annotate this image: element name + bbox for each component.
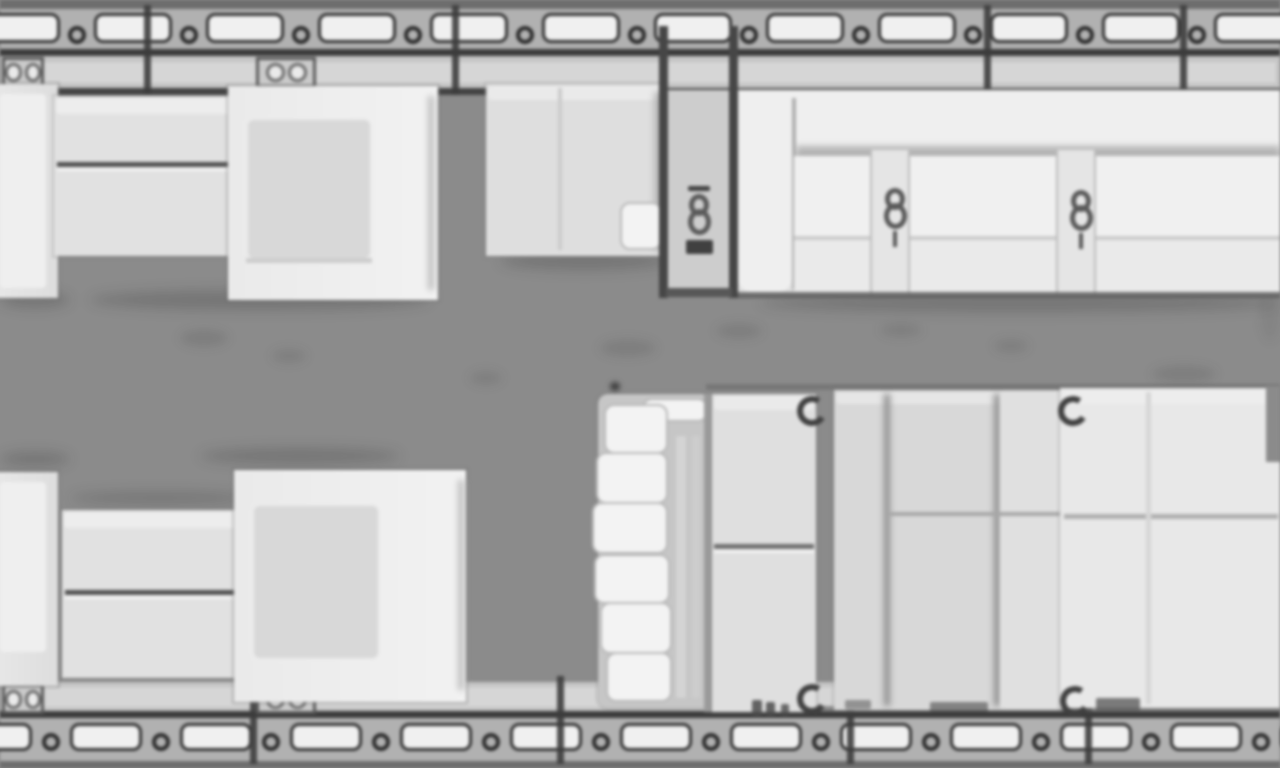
fuselage-frame-line xyxy=(452,5,459,95)
window-bracket xyxy=(922,733,940,751)
exit-seatbelt-icon xyxy=(684,186,714,286)
floor-fitting-mark xyxy=(766,702,775,716)
sidewall-fitting-bottom-left xyxy=(2,684,44,714)
cabin-window xyxy=(510,723,582,751)
cabin-window xyxy=(0,723,32,751)
seatbelt-part xyxy=(1079,233,1083,249)
seatbelt-part xyxy=(1070,205,1093,231)
bed-mattress-highlight xyxy=(1062,390,1278,404)
fuselage-frame-line xyxy=(1180,5,1187,95)
fuselage-top-sill-inner xyxy=(4,62,1276,83)
cabin-window xyxy=(950,723,1022,751)
window-bracket xyxy=(404,26,422,44)
shadow-above-aft-seat xyxy=(200,448,400,464)
cabin-window xyxy=(0,13,60,43)
seatbelt-part xyxy=(884,203,907,229)
window-bracket xyxy=(1188,26,1206,44)
stair-step-5 xyxy=(600,602,672,654)
cabin-window xyxy=(94,13,172,43)
floor-smudge xyxy=(272,350,306,362)
galley-credenza-seam xyxy=(558,88,562,250)
divan-front-rail xyxy=(794,240,1280,292)
stair-step-2 xyxy=(596,452,668,504)
forward-left-seat-cushion xyxy=(0,94,46,288)
floor-fitting-mark xyxy=(1096,698,1140,710)
floor-smudge xyxy=(470,372,502,384)
window-bracket xyxy=(852,26,870,44)
stair-unit-stripe xyxy=(676,436,686,698)
cabin-window xyxy=(990,13,1068,43)
bed-mattress-crease xyxy=(1146,392,1151,704)
seatbelt-part xyxy=(686,240,713,254)
window-bracket xyxy=(482,733,500,751)
forward-club-seat-frontline xyxy=(246,258,372,263)
cabin-window xyxy=(1060,723,1132,751)
cabin-window xyxy=(206,13,284,43)
divan-armrest-left xyxy=(738,94,792,292)
aft-cabinet-panel xyxy=(712,394,816,712)
galley-credenza-highlight xyxy=(488,86,662,100)
fitting-circle xyxy=(5,63,22,82)
divan-seatbelt-icon-1 xyxy=(878,188,912,288)
shadow-above-aft-left-seat xyxy=(0,452,70,466)
forward-club-seat-cushion xyxy=(246,118,372,260)
window-bracket xyxy=(152,733,170,751)
floor-fitting-mark xyxy=(930,702,988,712)
aft-club-seat-backline xyxy=(458,480,464,690)
cabin-window xyxy=(730,723,802,751)
floor-smudge xyxy=(1152,366,1216,382)
window-bracket xyxy=(628,26,646,44)
shadow-above-aft-table xyxy=(70,492,250,504)
forward-table-highlight xyxy=(56,98,244,114)
window-bracket xyxy=(372,733,390,751)
floor-smudge xyxy=(716,324,762,338)
cabin-window xyxy=(180,723,252,751)
fitting-circle xyxy=(5,690,22,709)
divan-bottom-line xyxy=(736,292,1280,298)
window-bracket xyxy=(292,26,310,44)
forward-club-seat-backline xyxy=(428,96,434,290)
cabin-window xyxy=(878,13,956,43)
floor-fitting-mark xyxy=(752,700,762,716)
cabin-floor-plan-screenshot xyxy=(0,0,1280,768)
cabin-window xyxy=(1170,723,1242,751)
fitting-circle xyxy=(266,63,285,82)
cabin-window xyxy=(1214,13,1280,43)
floor-smudge xyxy=(880,324,922,336)
stair-step-6 xyxy=(606,652,672,702)
window-bracket xyxy=(592,733,610,751)
floor-speck xyxy=(610,382,620,391)
cabin-window xyxy=(400,723,472,751)
window-bracket xyxy=(1142,733,1160,751)
bed-corner-notch xyxy=(1266,386,1280,462)
bed-mattress xyxy=(1060,388,1280,708)
fuselage-frame-line xyxy=(144,5,151,95)
seatbelt-part xyxy=(688,209,711,235)
aft-sofa-vseam-1 xyxy=(884,394,890,706)
fuselage-frame-line xyxy=(557,676,564,764)
aft-club-seat-cushion xyxy=(252,504,380,660)
stair-step-3 xyxy=(592,502,668,554)
floor-fitting-mark xyxy=(781,704,789,716)
cabin-window xyxy=(542,13,620,43)
bed-mattress-seam xyxy=(1064,514,1278,519)
aft-sofa-hseam xyxy=(890,512,1060,516)
aft-sofa-right-cushion xyxy=(1000,392,1062,708)
cabin-partition-left xyxy=(659,26,668,298)
aft-cabinet-seam-light xyxy=(714,549,814,553)
cabin-window xyxy=(290,723,362,751)
stair-step-4 xyxy=(594,554,670,604)
floor-fitting-mark xyxy=(845,700,871,709)
aft-table-split-light xyxy=(65,595,243,599)
window-bracket xyxy=(740,26,758,44)
window-bracket xyxy=(1252,733,1270,751)
divan-seat-cushion xyxy=(794,156,1280,236)
window-bracket xyxy=(180,26,198,44)
floor-smudge xyxy=(994,340,1028,352)
cabin-window xyxy=(766,13,844,43)
floor-smudge xyxy=(600,340,656,356)
fuselage-frame-line xyxy=(984,5,991,95)
fuselage-top-outer-edge xyxy=(0,0,1280,9)
forward-table-top xyxy=(54,96,246,256)
window-bracket xyxy=(1032,733,1050,751)
window-bracket xyxy=(1076,26,1094,44)
stair-unit-stripe xyxy=(692,436,700,698)
window-bracket xyxy=(68,26,86,44)
cabin-window xyxy=(70,723,142,751)
seatbelt-part xyxy=(893,231,897,247)
cabin-window xyxy=(620,723,692,751)
divan-backrest xyxy=(736,90,1280,152)
window-bracket xyxy=(702,733,720,751)
forward-table-split-light xyxy=(57,167,243,171)
window-bracket xyxy=(516,26,534,44)
cabin-window xyxy=(318,13,396,43)
galley-credenza-cabinet-door xyxy=(620,202,662,250)
fitting-circle xyxy=(288,63,307,82)
fitting-circle xyxy=(25,690,42,709)
cabin-floor-plan xyxy=(0,0,1280,768)
window-bracket xyxy=(42,733,60,751)
cabin-partition-right xyxy=(729,26,738,298)
window-bracket xyxy=(964,26,982,44)
cabin-window xyxy=(430,13,508,43)
cabin-partition-foot-bar xyxy=(666,288,732,297)
divan-seatbelt-icon-2 xyxy=(1064,190,1098,290)
floor-smudge xyxy=(180,330,228,346)
aft-table-highlight xyxy=(64,512,244,528)
cabin-window xyxy=(1102,13,1180,43)
fitting-circle xyxy=(25,63,42,82)
sidewall-fitting-top-mid xyxy=(256,57,316,88)
window-bracket xyxy=(262,733,280,751)
aft-left-seat-cushion xyxy=(0,482,46,652)
seatbelt-part xyxy=(688,186,710,191)
stair-step-1 xyxy=(604,404,668,454)
window-bracket xyxy=(812,733,830,751)
